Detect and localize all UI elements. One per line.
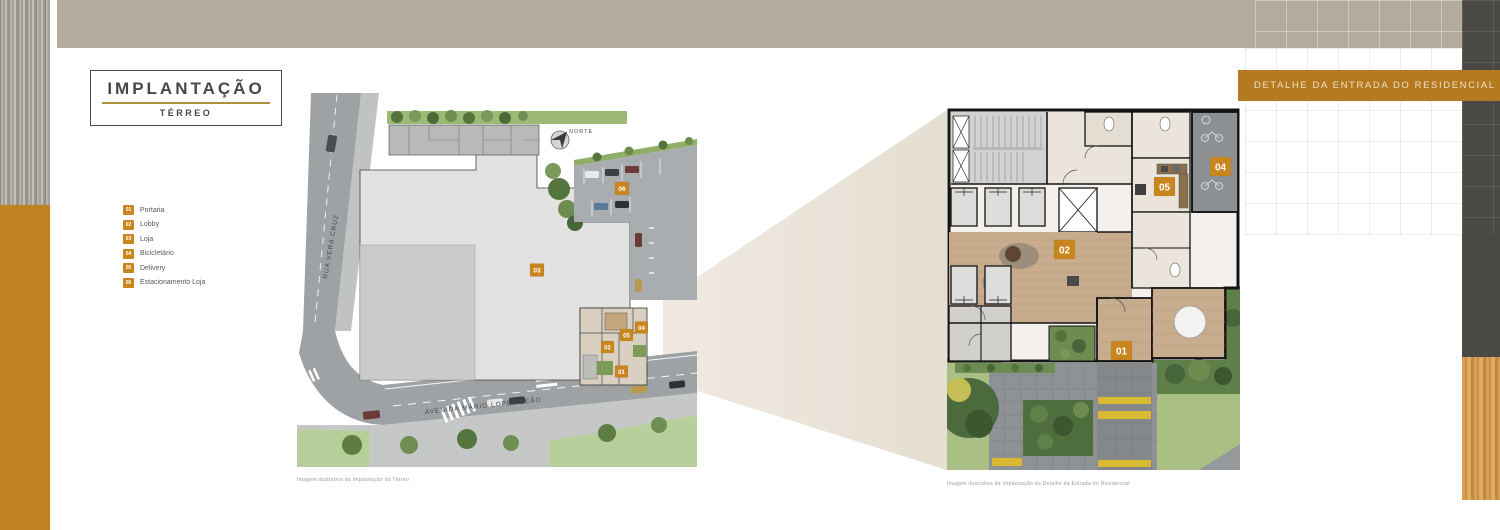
svg-text:02: 02 xyxy=(604,346,611,352)
site-plan-illustration[interactable]: NORTE 03 06 04 05 02 xyxy=(297,93,697,467)
detail-banner: DETALHE DA ENTRADA DO RESIDENCIAL xyxy=(1238,70,1500,101)
north-compass-icon: NORTE xyxy=(551,127,593,149)
detail-marker-01[interactable]: 01 xyxy=(1111,341,1132,360)
legend-item-loja: 03 Loja xyxy=(123,232,205,247)
right-wood-texture xyxy=(1462,357,1500,500)
site-plan-caption: Imagem ilustrativa da Implantação do Tér… xyxy=(297,477,409,483)
title-underline xyxy=(102,102,270,104)
legend-item-delivery: 05 Delivery xyxy=(123,261,205,276)
page-title: IMPLANTAÇÃO xyxy=(107,79,264,99)
legend-item-lobby: 02 Lobby xyxy=(123,218,205,233)
svg-text:01: 01 xyxy=(1116,347,1128,358)
left-orange-block xyxy=(0,205,50,530)
svg-text:01: 01 xyxy=(618,370,625,376)
site-building: NORTE 03 06 04 05 02 xyxy=(360,110,697,385)
detail-marker-02[interactable]: 02 xyxy=(1054,240,1075,259)
legend-key-05: 05 xyxy=(123,263,134,273)
site-marker-05[interactable]: 05 xyxy=(620,329,633,341)
legend-item-estacionamento: 06 Estacionamento Loja xyxy=(123,276,205,291)
page: IMPLANTAÇÃO TÉRREO 01 Portaria 02 Lobby … xyxy=(0,0,1500,530)
legend-key-02: 02 xyxy=(123,220,134,230)
svg-text:03: 03 xyxy=(533,268,541,275)
site-marker-06[interactable]: 06 xyxy=(615,182,629,195)
site-marker-01[interactable]: 01 xyxy=(615,366,628,378)
legend-label-03: Loja xyxy=(140,236,153,243)
legend-item-portaria: 01 Portaria xyxy=(123,203,205,218)
svg-text:05: 05 xyxy=(623,334,630,340)
svg-text:06: 06 xyxy=(618,186,626,193)
legend-label-02: Lobby xyxy=(140,221,159,228)
north-label: NORTE xyxy=(569,129,593,135)
site-marker-02[interactable]: 02 xyxy=(601,341,614,353)
legend-label-04: Bicicletário xyxy=(140,250,174,257)
detail-marker-04[interactable]: 04 xyxy=(1210,157,1231,176)
top-beige-bar xyxy=(57,0,1462,48)
right-dark-grid-pattern xyxy=(1462,0,1500,235)
top-bar-grid-pattern xyxy=(1255,0,1462,48)
svg-text:04: 04 xyxy=(638,326,645,332)
site-marker-03[interactable]: 03 xyxy=(530,264,544,277)
legend-label-01: Portaria xyxy=(140,207,165,214)
svg-text:05: 05 xyxy=(1159,183,1171,194)
detail-building xyxy=(949,110,1238,361)
page-subtitle: TÉRREO xyxy=(160,108,213,118)
legend-key-01: 01 xyxy=(123,205,134,215)
detail-plan-caption: Imagem ilustrativa da Implantação do Det… xyxy=(947,481,1130,487)
svg-text:04: 04 xyxy=(1215,163,1227,174)
legend-label-05: Delivery xyxy=(140,265,165,272)
legend: 01 Portaria 02 Lobby 03 Loja 04 Biciclet… xyxy=(123,203,205,290)
detail-marker-05[interactable]: 05 xyxy=(1154,177,1175,196)
detail-banner-label: DETALHE DA ENTRADA DO RESIDENCIAL xyxy=(1254,80,1496,91)
legend-key-03: 03 xyxy=(123,234,134,244)
site-marker-04[interactable]: 04 xyxy=(635,322,648,334)
left-concrete-texture xyxy=(0,0,50,205)
legend-item-bicicletario: 04 Bicicletário xyxy=(123,247,205,262)
legend-key-06: 06 xyxy=(123,278,134,288)
detail-plan-illustration[interactable]: 04 05 02 01 xyxy=(947,108,1240,470)
title-box: IMPLANTAÇÃO TÉRREO xyxy=(90,70,282,126)
legend-key-04: 04 xyxy=(123,249,134,259)
legend-label-06: Estacionamento Loja xyxy=(140,279,205,286)
svg-text:02: 02 xyxy=(1059,246,1071,257)
